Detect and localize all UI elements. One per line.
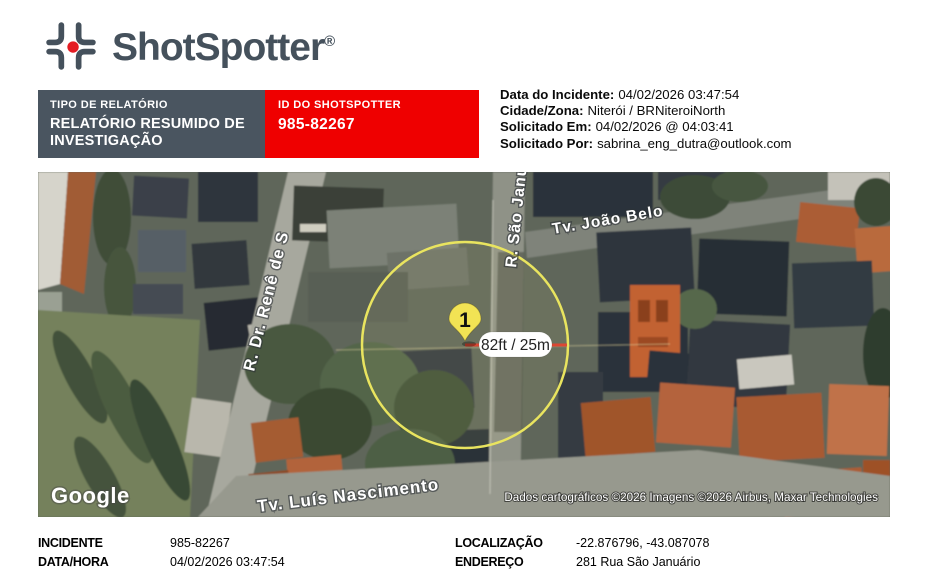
footer-address-label: ENDEREÇO xyxy=(455,555,523,569)
map-attribution[interactable]: Dados cartográficos ©2026 Imagens ©2026 … xyxy=(504,491,878,504)
detail-row-city-zone: Cidade/Zona:Niterói / BRNiteroiNorth xyxy=(500,103,792,119)
footer-location-label: LOCALIZAÇÃO xyxy=(455,536,543,550)
report-page: { "logo": { "brand": "ShotSpotter", "reg… xyxy=(0,0,929,571)
logo-red-dot xyxy=(67,41,78,52)
brand-wordmark: ShotSpotter® xyxy=(112,28,335,67)
shotspotter-logo-icon xyxy=(44,18,98,74)
map-canvas: 1 82ft / 25m R. Dr. Renê de S R. São Jan… xyxy=(38,172,890,517)
detail-row-requested-by: Solicitado Por:sabrina_eng_dutra@outlook… xyxy=(500,136,792,152)
google-logo[interactable]: Google xyxy=(51,483,130,508)
shotspotter-id-panel: ID DO SHOTSPOTTER 985-82267 xyxy=(265,90,479,158)
detail-row-requested-at: Solicitado Em:04/02/2026 @ 04:03:41 xyxy=(500,119,792,135)
shotspotter-id-label: ID DO SHOTSPOTTER xyxy=(278,99,467,111)
footer-datetime-value: 04/02/2026 03:47:54 xyxy=(170,555,285,569)
satellite-map[interactable]: 1 82ft / 25m R. Dr. Renê de S R. São Jan… xyxy=(38,172,890,517)
incident-pin-number: 1 xyxy=(459,309,471,332)
footer-incident-value: 985-82267 xyxy=(170,536,230,550)
footer-address-value: 281 Rua São Januário xyxy=(576,555,700,569)
pin-shadow xyxy=(462,341,476,346)
report-type-value: RELATÓRIO RESUMIDO DE INVESTIGAÇÃO xyxy=(50,116,253,150)
footer-incident-label: INCIDENTE xyxy=(38,536,103,550)
footer-datetime-label: DATA/HORA xyxy=(38,555,108,569)
detail-row-incident-date: Data do Incidente:04/02/2026 03:47:54 xyxy=(500,87,792,103)
incident-details: Data do Incidente:04/02/2026 03:47:54 Ci… xyxy=(500,87,792,152)
report-type-panel: TIPO DE RELATÓRIO RELATÓRIO RESUMIDO DE … xyxy=(38,90,265,158)
report-type-label: TIPO DE RELATÓRIO xyxy=(50,99,253,111)
shotspotter-id-value: 985-82267 xyxy=(278,116,467,134)
footer-location-value: -22.876796, -43.087078 xyxy=(576,536,709,550)
registered-mark: ® xyxy=(324,33,335,50)
radius-label-text: 82ft / 25m xyxy=(481,337,550,354)
